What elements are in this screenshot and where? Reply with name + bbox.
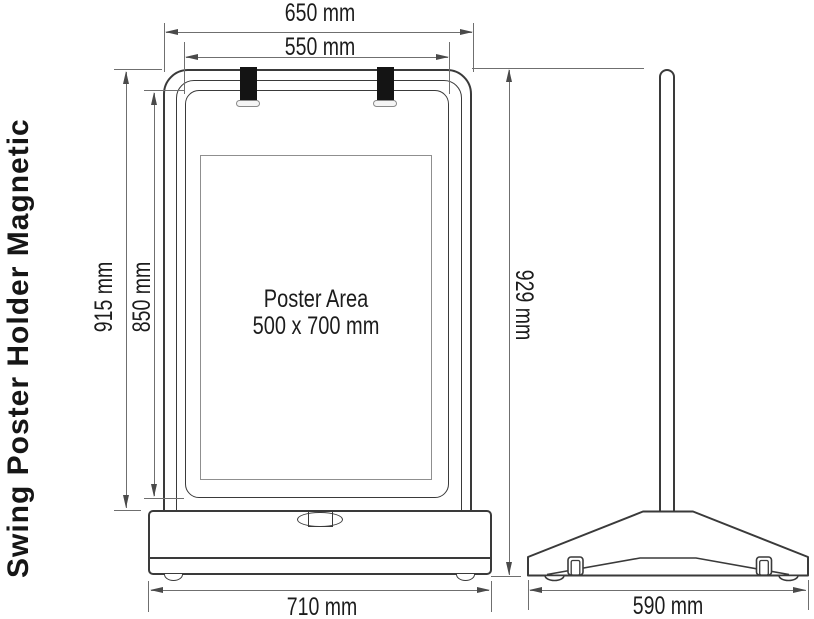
poster-area-line1: Poster Area (196, 286, 436, 313)
dim-850-arrow-top (151, 92, 157, 105)
side-left-foot (545, 576, 564, 581)
dim-590-ext-right (808, 580, 809, 610)
dim-590-ext-left (528, 580, 529, 610)
poster-area-line2: 500 x 700 mm (196, 313, 436, 340)
side-right-clip-inner (760, 561, 769, 576)
dim-915-ext-bottom (114, 510, 141, 511)
dim-590-label: 590 mm (621, 593, 715, 619)
dim-650-arrow-left (165, 29, 178, 35)
dim-650-arrow-right (460, 29, 473, 35)
side-pole (659, 69, 675, 514)
dim-850-ext-top (144, 90, 184, 91)
dim-550-ext-right (449, 42, 450, 94)
dim-915-label: 915 mm (91, 250, 117, 344)
dim-929-ext-bottom (491, 576, 521, 577)
dim-710-line (151, 590, 489, 591)
dim-850-ext-bottom (144, 498, 184, 499)
front-base-seam (149, 557, 491, 559)
right-strap-hook (373, 100, 397, 107)
side-left-clip-inner (571, 561, 580, 576)
dim-915-arrow-bottom (123, 495, 129, 508)
poster-area-label: Poster Area 500 x 700 mm (196, 286, 436, 340)
dim-915-ext-top (114, 69, 162, 70)
dim-550-ext-left (184, 42, 185, 94)
dim-650-label: 650 mm (273, 0, 367, 26)
dim-590-arrow-left (529, 587, 542, 593)
front-left-foot (164, 574, 183, 581)
front-right-foot (456, 574, 475, 581)
dim-915-line (126, 72, 127, 508)
side-base (518, 504, 814, 588)
side-right-foot (779, 576, 798, 581)
left-strap (240, 67, 257, 101)
dim-550-arrow-left (185, 54, 198, 60)
dim-929-ext-top (472, 68, 644, 69)
dim-710-arrow-right (477, 587, 490, 593)
dim-710-ext-right (491, 581, 492, 612)
dim-850-arrow-bottom (151, 484, 157, 497)
front-base-handle-oval (297, 512, 343, 528)
dim-929-arrow-top (506, 69, 512, 82)
technical-drawing-page: Swing Poster Holder Magnetic Poster Area… (0, 0, 814, 619)
dim-915-arrow-top (123, 71, 129, 84)
dim-929-label: 929 mm (511, 258, 537, 352)
dim-710-ext-left (148, 581, 149, 612)
dim-710-arrow-left (150, 587, 163, 593)
dim-850-label: 850 mm (129, 250, 155, 344)
dim-929-arrow-bottom (506, 562, 512, 575)
dim-590-arrow-right (793, 587, 806, 593)
page-title: Swing Poster Holder Magnetic (2, 58, 34, 578)
left-strap-hook (236, 100, 260, 107)
dim-710-label: 710 mm (275, 594, 369, 619)
dim-550-label: 550 mm (273, 34, 367, 60)
dim-650-ext-right (473, 23, 474, 72)
right-strap (377, 67, 394, 101)
dim-590-line (530, 590, 806, 591)
dim-550-arrow-right (436, 54, 449, 60)
